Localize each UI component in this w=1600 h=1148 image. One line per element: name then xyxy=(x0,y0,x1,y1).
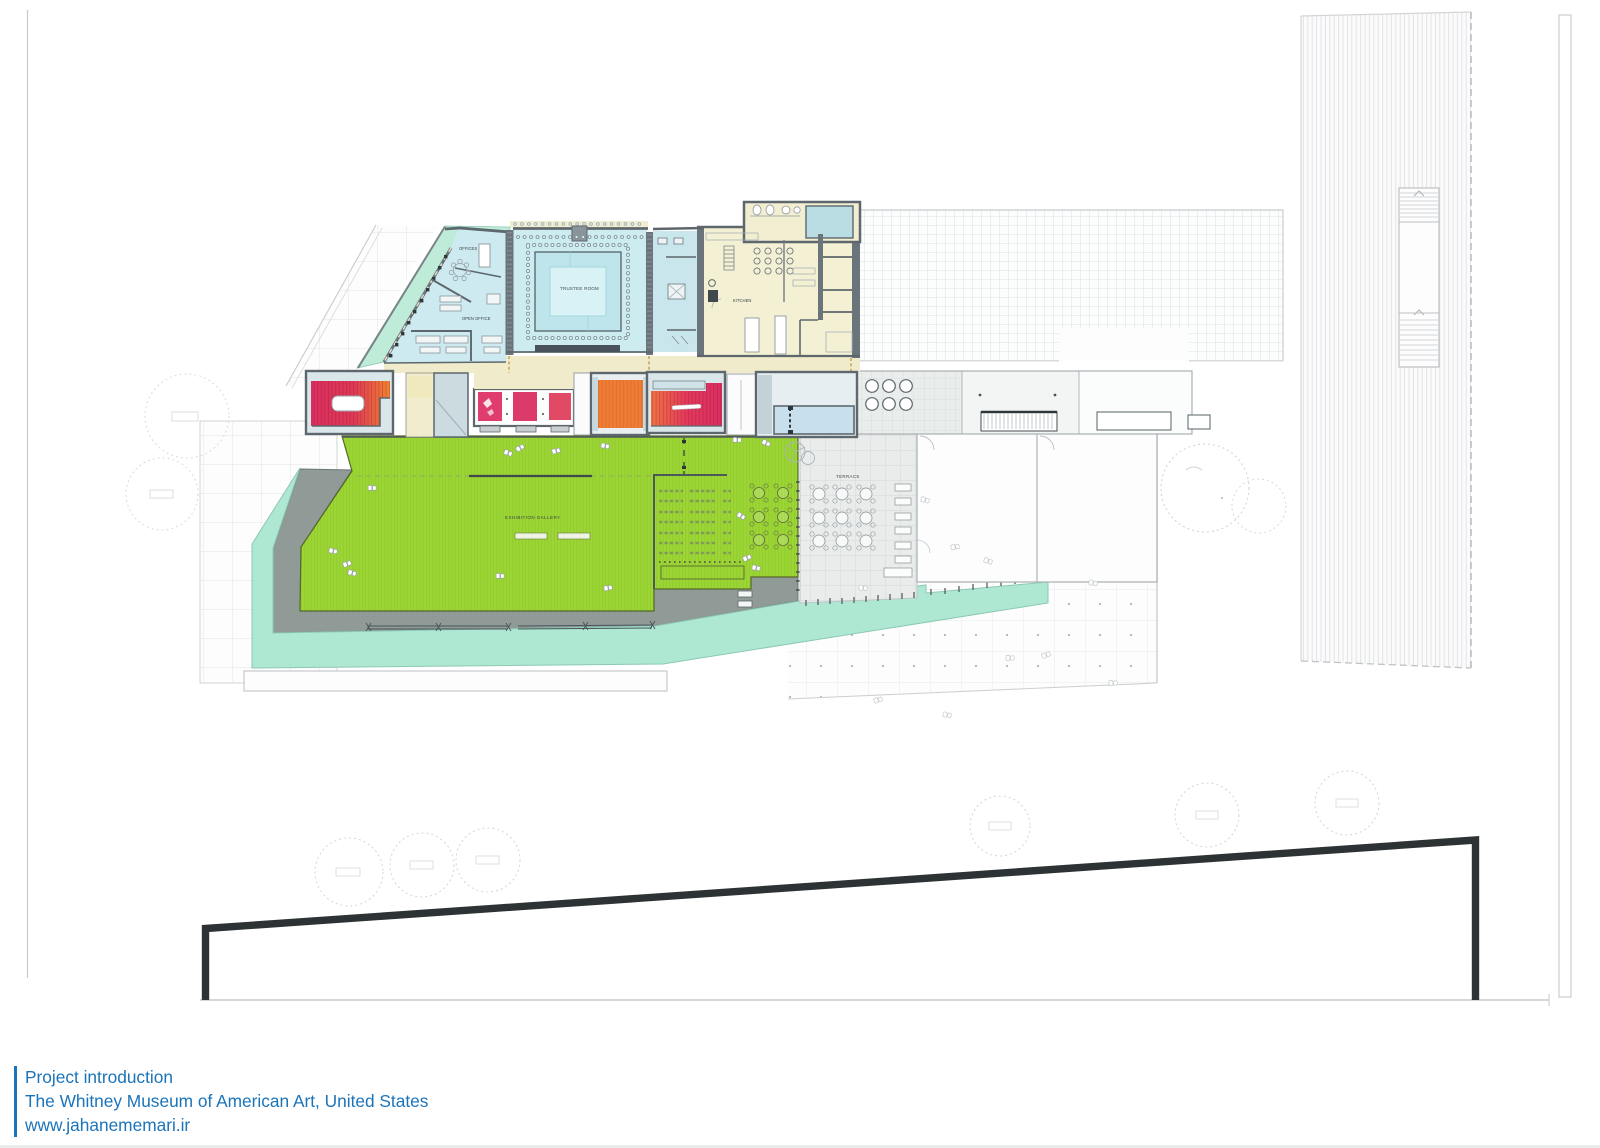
svg-text:KITCHEN: KITCHEN xyxy=(733,298,751,303)
svg-text:EXHIBITION GALLERY: EXHIBITION GALLERY xyxy=(505,515,561,520)
svg-text:OPEN OFFICE: OPEN OFFICE xyxy=(462,316,491,321)
svg-text:Project introduction: Project introduction xyxy=(25,1067,173,1087)
svg-text:The Whitney Museum of American: The Whitney Museum of American Art, Unit… xyxy=(25,1091,429,1111)
svg-text:TERRACE: TERRACE xyxy=(836,474,860,479)
svg-text:TRUSTEE ROOM: TRUSTEE ROOM xyxy=(560,286,599,291)
svg-text:www.jahanememari.ir: www.jahanememari.ir xyxy=(24,1115,190,1135)
svg-text:OFFICES: OFFICES xyxy=(459,246,477,251)
